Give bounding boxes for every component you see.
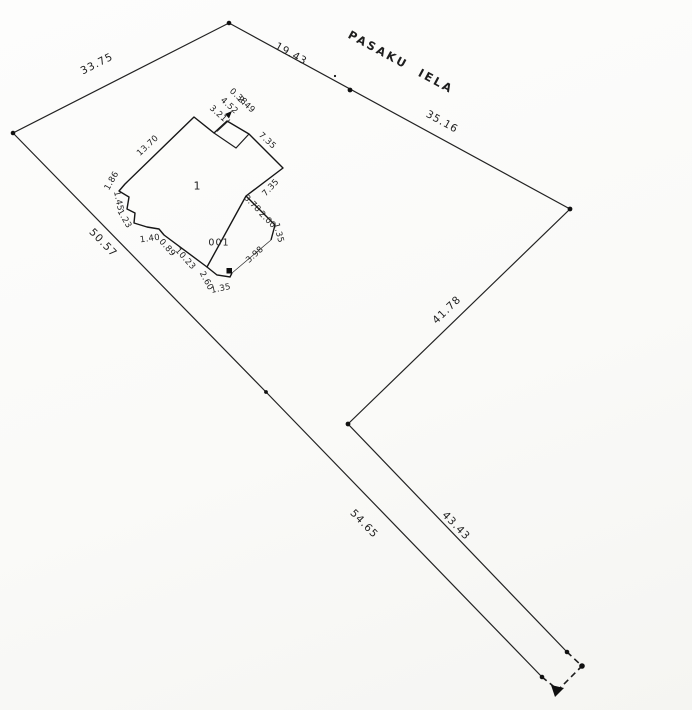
square-marker xyxy=(227,268,233,274)
survey-plan-page: 33.7519.43PASAKU IELA35.1641.7850.5754.6… xyxy=(0,0,692,710)
corner-triangle-marker xyxy=(551,685,564,697)
building-number: 1 xyxy=(194,180,201,193)
parcel-boundary-dashed xyxy=(542,652,582,690)
building-code: 001 xyxy=(208,238,229,249)
building-annex-lines xyxy=(207,196,275,277)
triangle-markers xyxy=(225,111,564,697)
parcel-drawing xyxy=(0,0,692,710)
parcel-boundary xyxy=(13,23,570,677)
